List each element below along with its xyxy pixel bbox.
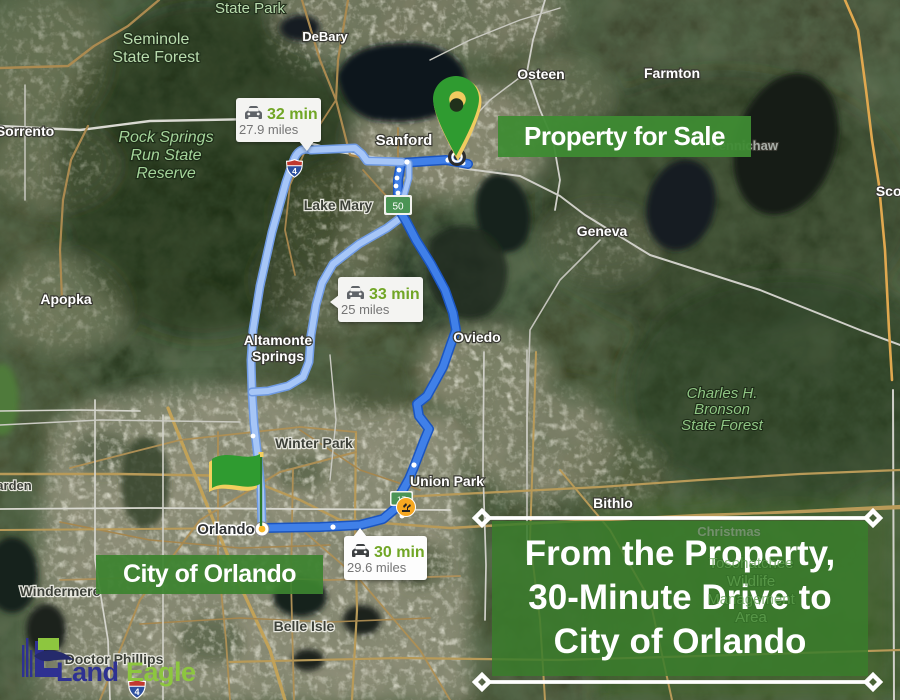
svg-text:30 min: 30 min — [374, 544, 425, 561]
svg-text:arden: arden — [0, 478, 32, 493]
svg-text:27.9 miles: 27.9 miles — [239, 122, 299, 137]
svg-text:Charles H.: Charles H. — [687, 385, 758, 402]
svg-text:Oviedo: Oviedo — [453, 329, 500, 345]
svg-text:32 min: 32 min — [267, 106, 318, 123]
svg-text:State Forest: State Forest — [681, 417, 764, 434]
svg-text:Run State: Run State — [130, 147, 201, 164]
svg-text:Windermere: Windermere — [20, 583, 101, 599]
svg-text:29.6 miles: 29.6 miles — [347, 560, 407, 575]
svg-text:State Forest: State Forest — [112, 49, 200, 66]
svg-text:Orlando: Orlando — [197, 521, 255, 538]
svg-text:Bronson: Bronson — [694, 401, 750, 418]
svg-text:Geneva: Geneva — [577, 223, 628, 239]
svg-text:25 miles: 25 miles — [341, 302, 390, 317]
svg-text:Sorrento: Sorrento — [0, 123, 54, 139]
svg-text:Winter Park: Winter Park — [275, 435, 353, 451]
svg-text:Scot: Scot — [876, 183, 900, 199]
svg-text:Doctor Phillips: Doctor Phillips — [65, 651, 164, 667]
svg-text:Osteen: Osteen — [517, 66, 564, 82]
svg-text:Lake Mary: Lake Mary — [304, 197, 373, 213]
svg-text:Belle Isle: Belle Isle — [274, 618, 335, 634]
svg-text:Springs: Springs — [252, 348, 304, 364]
svg-text:33 min: 33 min — [369, 286, 420, 303]
svg-text:Reserve: Reserve — [136, 165, 196, 182]
svg-text:Rock Springs: Rock Springs — [118, 129, 213, 146]
svg-text:Altamonte: Altamonte — [244, 332, 313, 348]
svg-text:Seminole: Seminole — [123, 31, 190, 48]
svg-text:Apopka: Apopka — [40, 291, 92, 307]
svg-text:50: 50 — [392, 202, 404, 213]
svg-text:Bithlo: Bithlo — [593, 495, 633, 511]
svg-text:State Park: State Park — [215, 0, 286, 17]
svg-text:DeBary: DeBary — [302, 29, 348, 44]
svg-text:4: 4 — [134, 687, 139, 697]
svg-text:Sanford: Sanford — [376, 132, 433, 149]
svg-text:Farmton: Farmton — [644, 65, 700, 81]
svg-text:Union Park: Union Park — [410, 473, 484, 489]
svg-text:4: 4 — [292, 166, 297, 176]
